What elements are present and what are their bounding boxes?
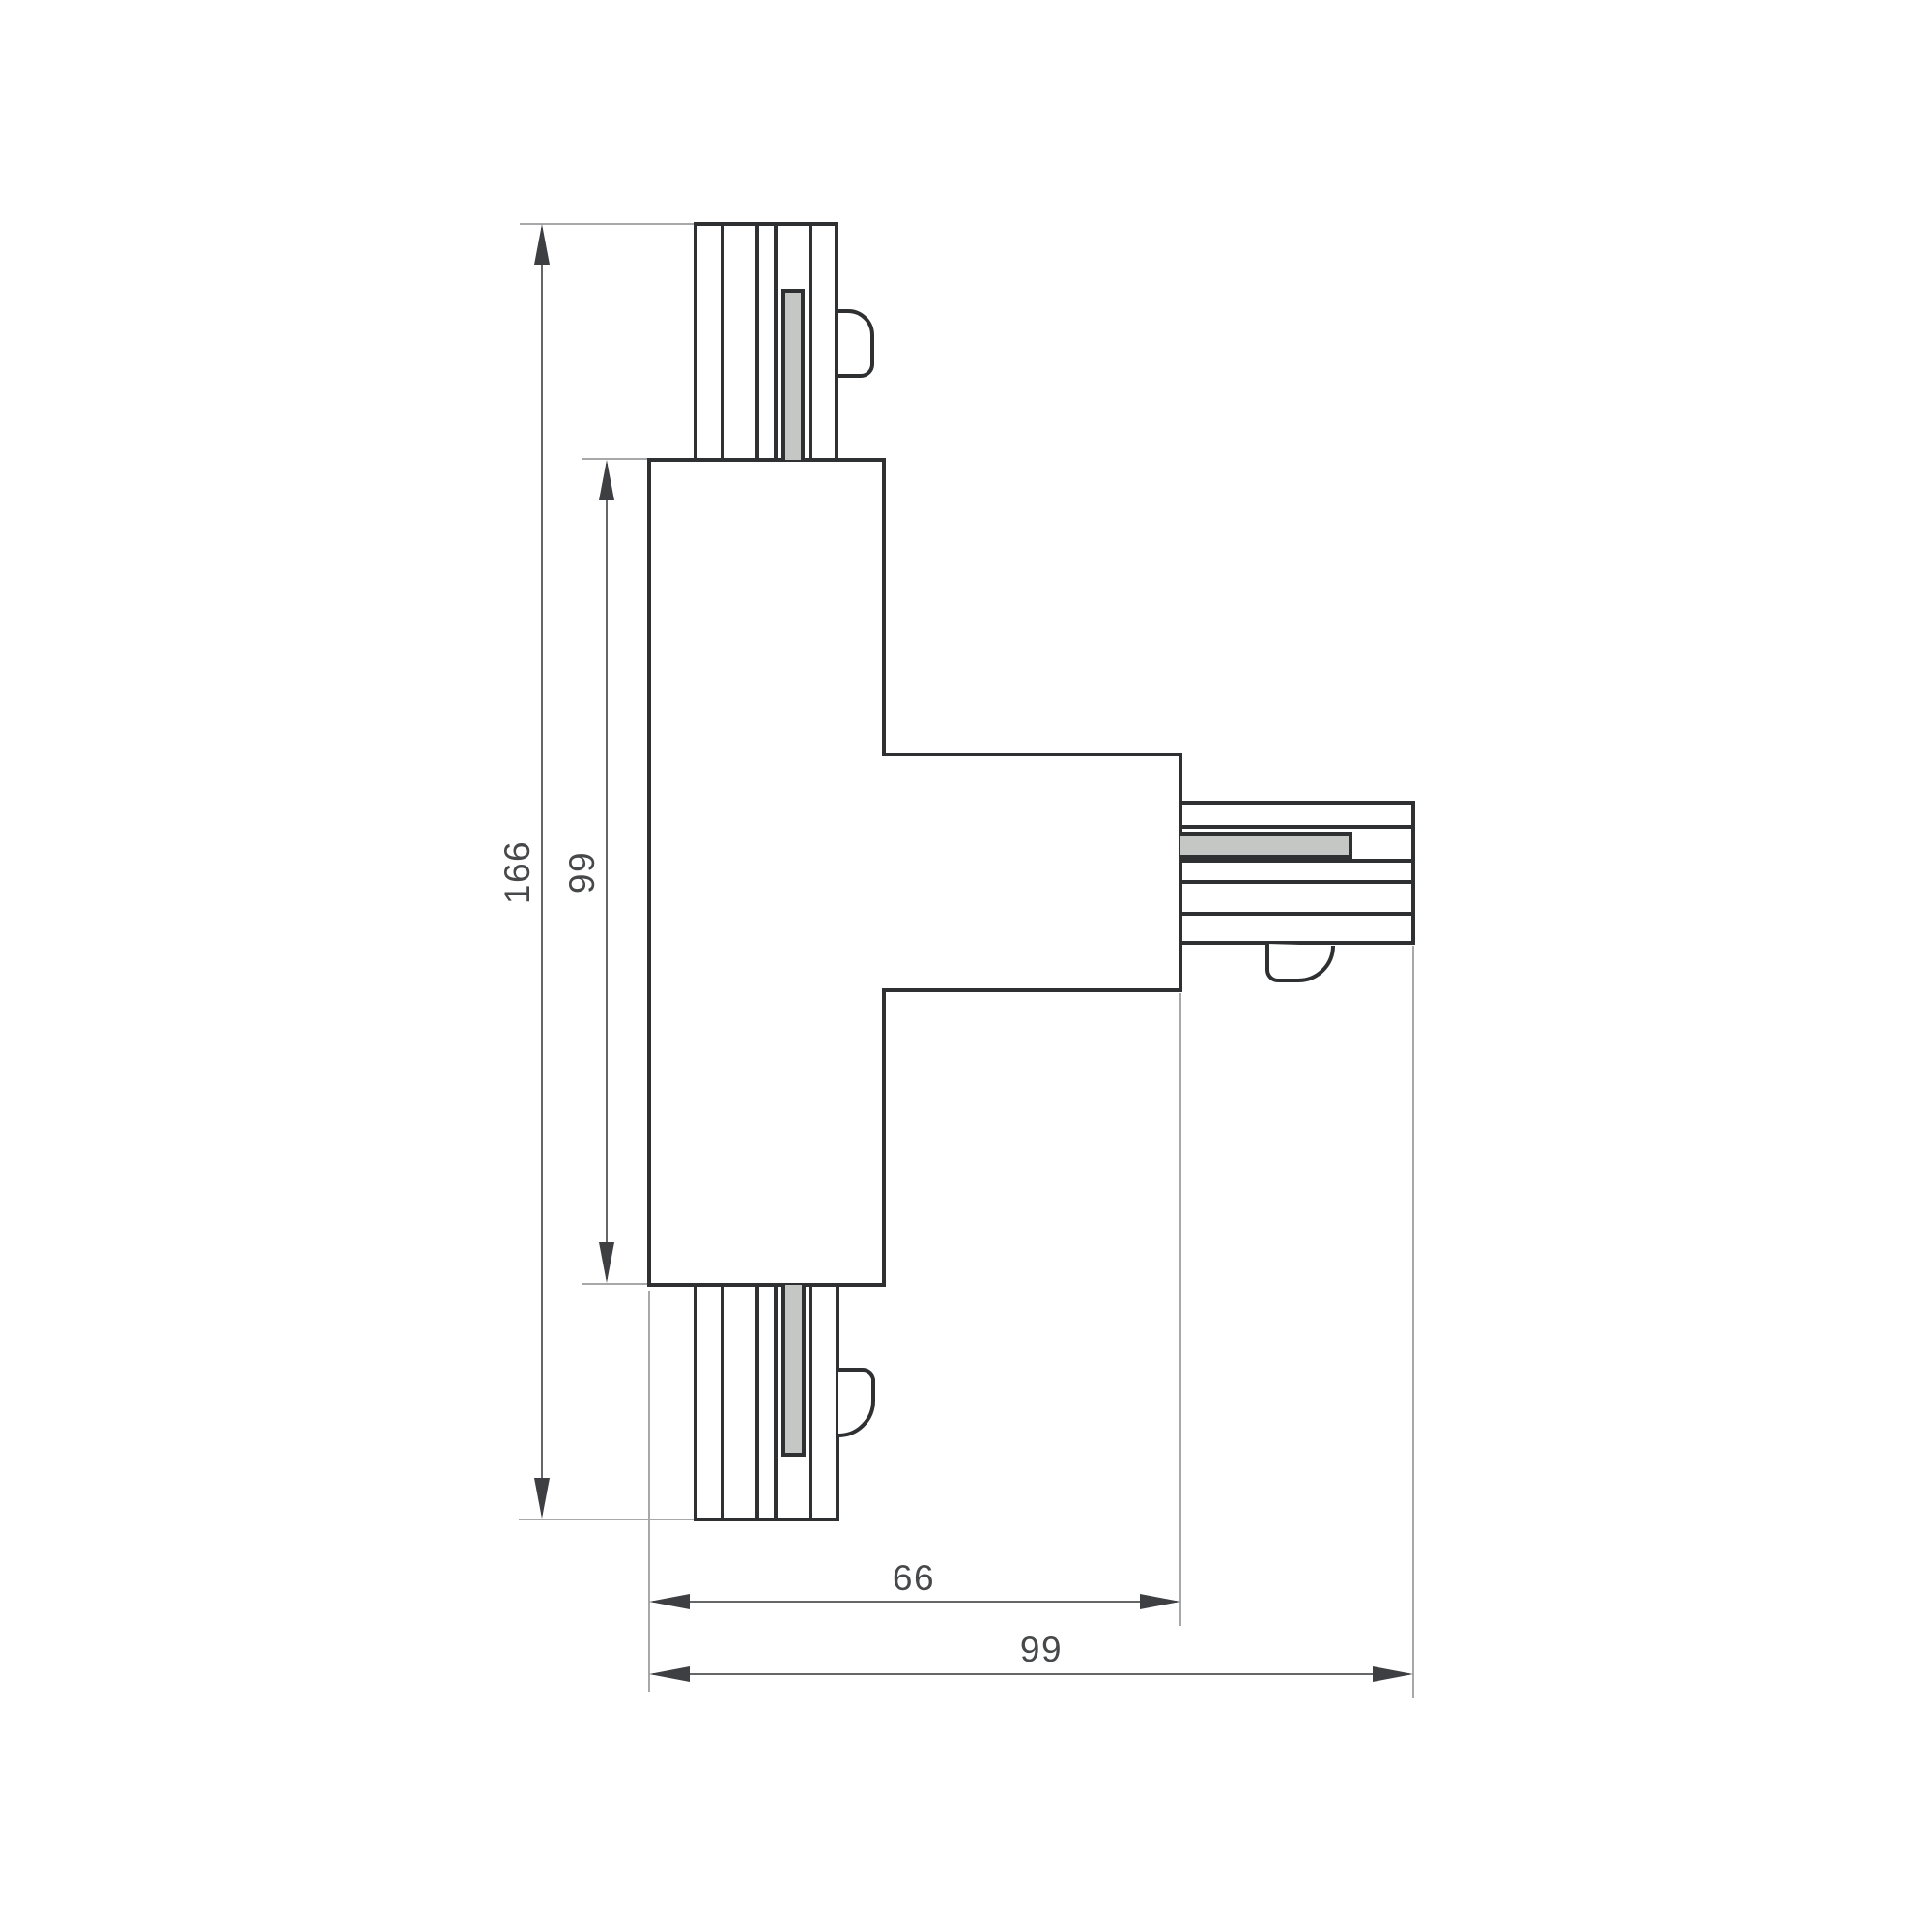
arrow-overall-height-bottom xyxy=(534,1478,550,1519)
top-connector-contact-strip xyxy=(783,291,803,460)
bottom-connector-contact-strip xyxy=(783,1285,804,1455)
bottom-connector-latch xyxy=(838,1370,873,1435)
top-connector xyxy=(696,224,872,460)
technical-drawing-canvas: 166 99 66 99 xyxy=(0,0,1932,1932)
right-connector xyxy=(1180,803,1413,980)
bottom-connector-outline xyxy=(696,1285,838,1520)
right-connector-contact-strip xyxy=(1180,834,1350,857)
top-connector-outline xyxy=(696,224,837,460)
right-connector-latch xyxy=(1267,944,1333,980)
bottom-connector xyxy=(696,1285,873,1520)
arrow-branch-width-right xyxy=(1140,1594,1180,1609)
t-body-outline xyxy=(649,460,1180,1285)
top-connector-latch xyxy=(838,311,872,376)
dim-label-overall-width: 99 xyxy=(1020,1630,1063,1669)
arrow-overall-height-top xyxy=(534,224,550,265)
dim-label-overall-height: 166 xyxy=(497,840,537,904)
dimension-drawing: 166 99 66 99 xyxy=(0,0,1932,1932)
arrow-overall-width-right xyxy=(1373,1666,1413,1682)
dim-label-branch-width: 66 xyxy=(893,1558,935,1598)
right-connector-outline xyxy=(1180,803,1413,943)
arrow-body-height-bottom xyxy=(599,1242,614,1283)
arrow-branch-width-left xyxy=(649,1594,690,1609)
dim-label-body-height: 99 xyxy=(562,851,602,894)
arrow-overall-width-left xyxy=(649,1666,690,1682)
arrow-body-height-top xyxy=(599,460,614,500)
